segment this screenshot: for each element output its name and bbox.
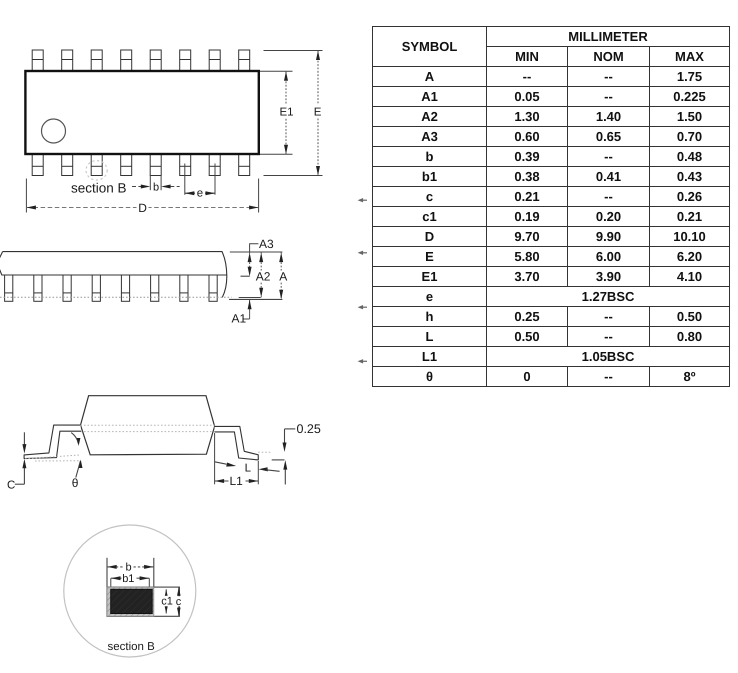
svg-text:section B: section B — [71, 181, 127, 196]
svg-text:A2: A2 — [256, 269, 271, 283]
svg-text:L: L — [245, 463, 252, 475]
svg-text:A: A — [279, 269, 287, 283]
svg-text:E1: E1 — [280, 107, 294, 119]
svg-text:e: e — [197, 188, 203, 200]
svg-text:θ: θ — [72, 476, 79, 490]
svg-text:b: b — [126, 562, 132, 574]
svg-text:L1: L1 — [230, 474, 244, 488]
svg-text:C: C — [7, 480, 15, 492]
svg-text:c1: c1 — [161, 596, 173, 608]
svg-text:c: c — [176, 596, 182, 608]
svg-text:A1: A1 — [232, 312, 247, 326]
svg-text:D: D — [138, 201, 147, 215]
svg-text:0.25: 0.25 — [297, 422, 321, 436]
svg-text:b: b — [153, 181, 159, 193]
svg-text:E: E — [314, 107, 322, 119]
svg-text:section B: section B — [108, 641, 156, 653]
svg-text:b1: b1 — [122, 573, 134, 585]
svg-text:A3: A3 — [259, 237, 274, 251]
